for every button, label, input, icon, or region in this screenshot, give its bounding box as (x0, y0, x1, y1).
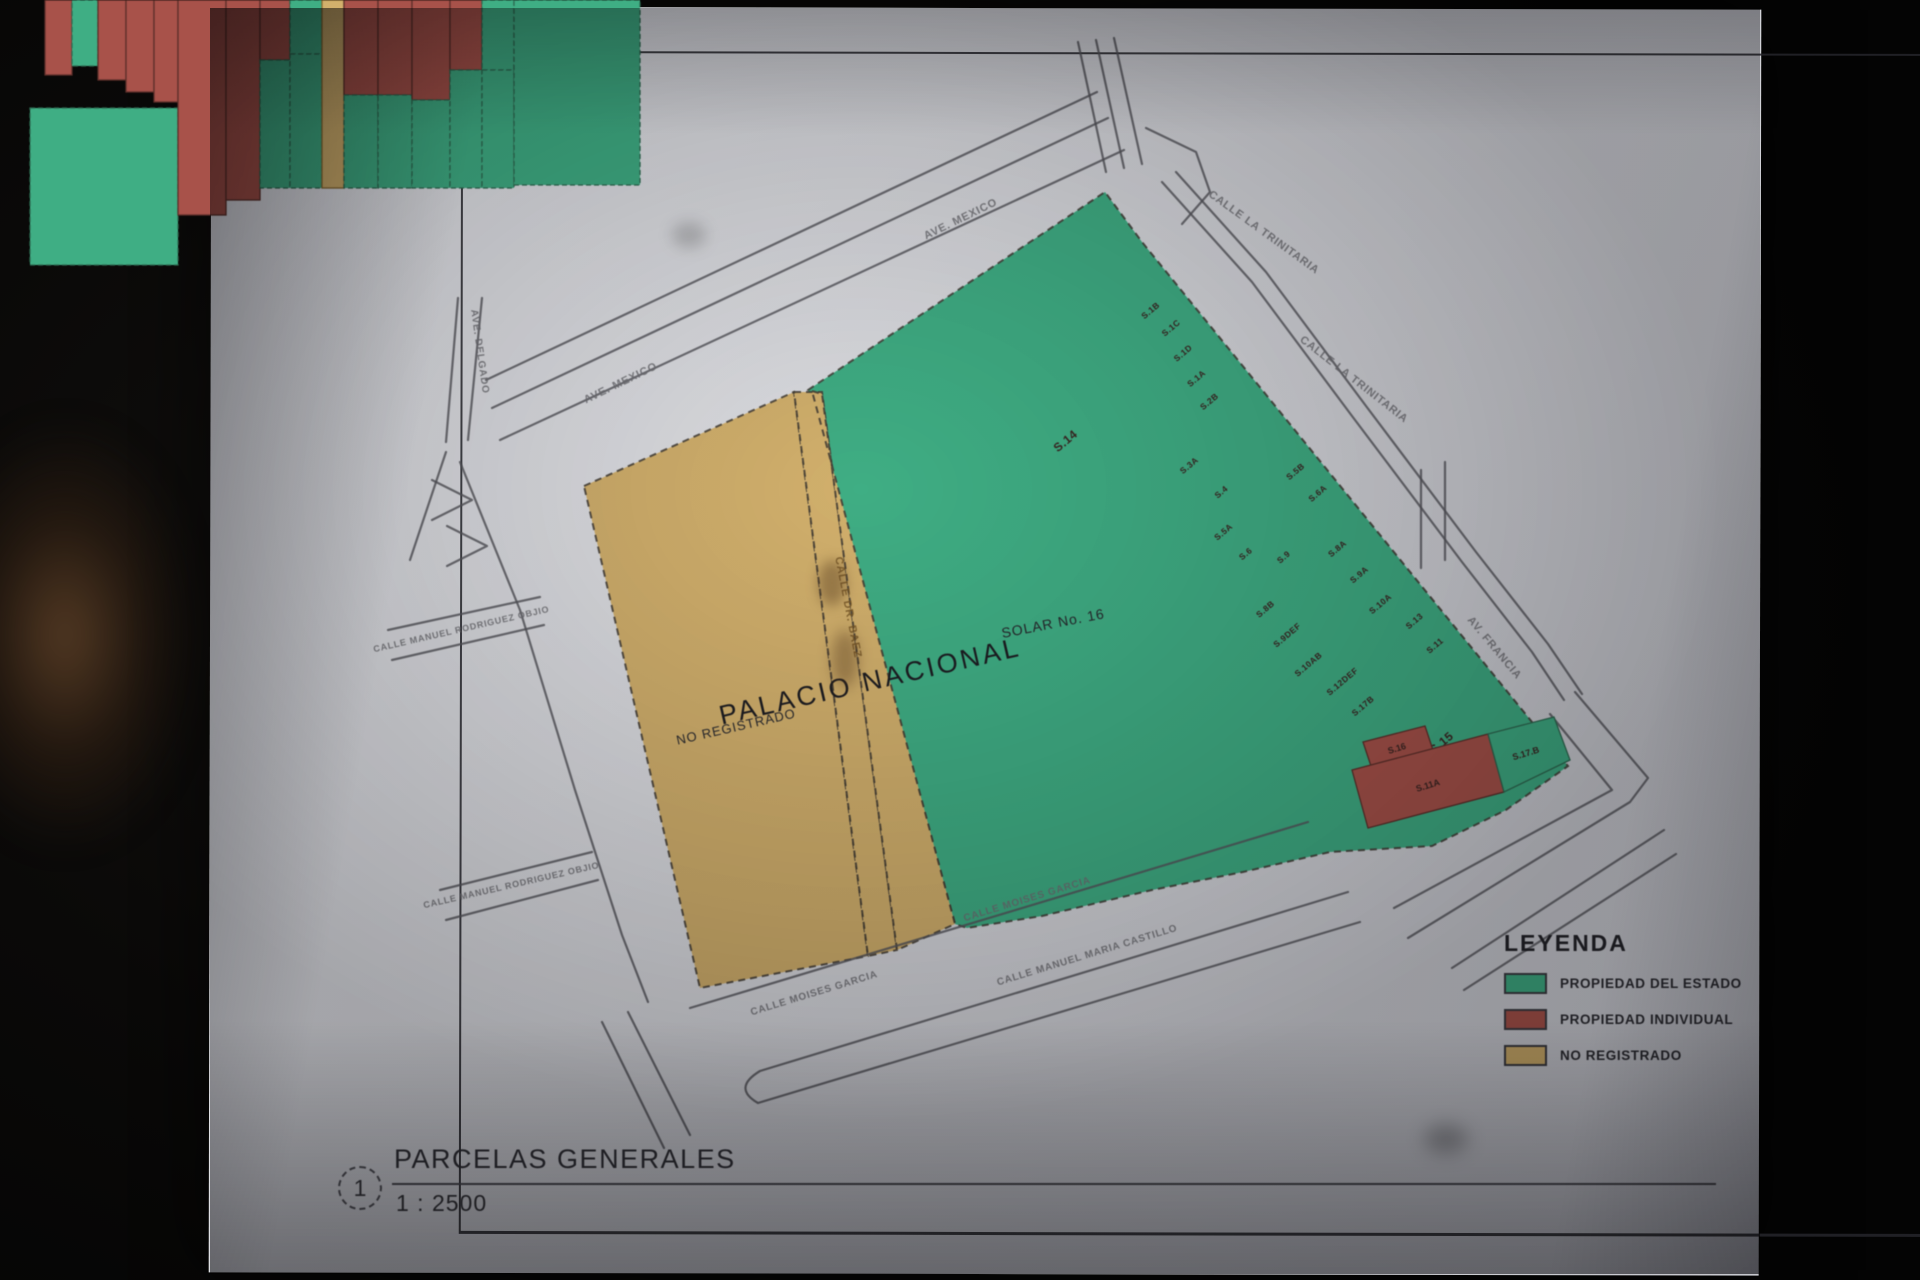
parcel-s8a (344, 0, 378, 95)
street-label: CALLE LA TRINITARIA (1206, 188, 1321, 276)
green-swatch (1504, 973, 1547, 994)
parcel-s3a (178, 0, 226, 215)
street-label: AVE. MEXICO (582, 360, 659, 406)
title-underline (392, 1183, 1716, 1185)
photo-background: S.1BS.1CS.1DS.1AS.2BS.14S.3AS.4S.5BS.5AS… (0, 0, 1920, 1280)
legend-item-individual-property: PROPIEDAD INDIVIDUAL (1504, 1010, 1739, 1029)
parcel-s1b (45, 0, 72, 75)
page-title: PARCELAS GENERALES (394, 1144, 736, 1175)
parcel-s2b (154, 0, 178, 102)
street-line (628, 1012, 690, 1135)
scale-label: 1 : 2500 (396, 1190, 487, 1217)
parcel-s5b (260, 0, 290, 60)
street-line (602, 1022, 664, 1148)
legend: LEYENDA PROPIEDAD DEL ESTADO PROPIEDAD I… (1504, 930, 1739, 1065)
legend-item-state-property: PROPIEDAD DEL ESTADO (1504, 974, 1739, 993)
street-label: CALLE LA TRINITARIA (1297, 334, 1410, 426)
title-block: 1 PARCELAS GENERALES 1 : 2500 (336, 1140, 1728, 1232)
street-line (446, 298, 458, 442)
street-label: CALLE MOISES GARCIA (749, 969, 879, 1018)
parcel-s14 (30, 108, 178, 265)
legend-item-not-registered: NO REGISTRADO (1504, 1046, 1739, 1065)
street-line (410, 452, 446, 560)
parcel-s6a (290, 0, 322, 54)
parcel-s10a (412, 0, 450, 100)
tan-swatch (1504, 1045, 1547, 1066)
street-label: CALLE MANUEL MARIA CASTILLO (996, 923, 1179, 989)
parcel-s9a (378, 0, 412, 95)
street-label: AVE. DELGADO (468, 309, 491, 395)
street-line (447, 526, 487, 566)
parcel-s17b (482, 70, 514, 188)
street-label: AVE. MEXICO (922, 196, 999, 242)
parcel-s12def (450, 70, 482, 188)
parcel-s9def (378, 95, 412, 188)
red-swatch (1504, 1009, 1547, 1030)
parcel-s10ab (412, 100, 450, 188)
parcel-s1c (72, 0, 98, 66)
street-line (432, 480, 472, 520)
parcel-s13 (450, 0, 482, 70)
parcel-s4 (226, 0, 260, 200)
parcel-s5a (260, 60, 290, 188)
street-line (1146, 128, 1210, 224)
parcel-s6 (290, 54, 322, 188)
figure-number-badge: 1 (338, 1166, 382, 1210)
parcel-s9 (322, 0, 344, 188)
parcel-map: S.1BS.1CS.1DS.1AS.2BS.14S.3AS.4S.5BS.5AS… (0, 0, 1920, 1280)
parcel-s15 (514, 0, 640, 185)
parcel-s11 (482, 0, 514, 70)
parcel-s8b (344, 95, 378, 188)
legend-title: LEYENDA (1504, 930, 1739, 957)
parcel-s1a (126, 0, 154, 92)
parcel-s1d (98, 0, 126, 80)
